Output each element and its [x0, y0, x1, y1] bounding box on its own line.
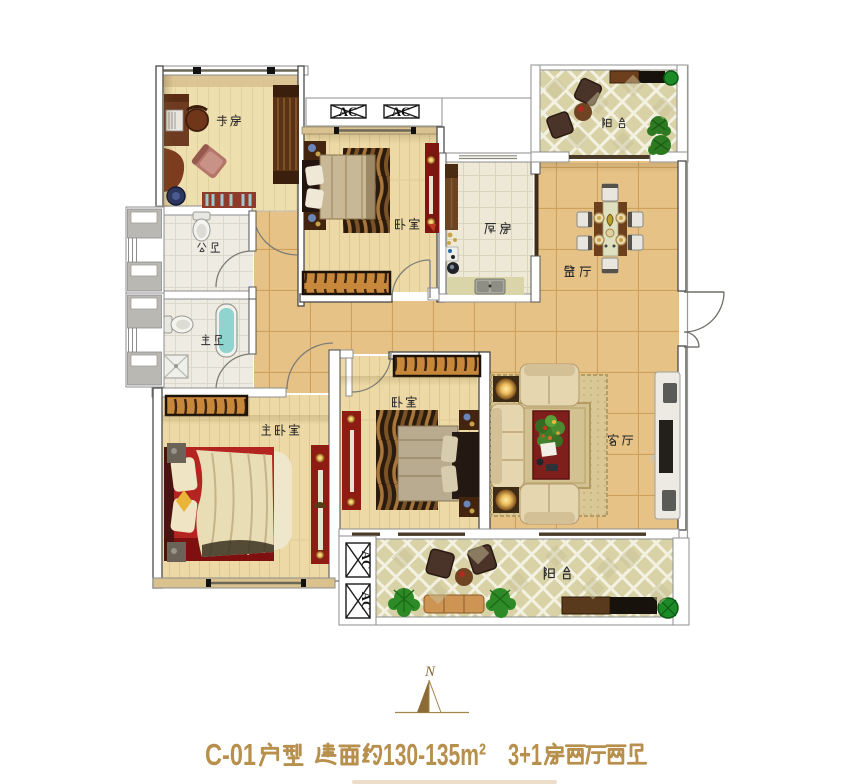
- svg-text:3+1: 3+1: [508, 737, 542, 772]
- svg-text:C-01: C-01: [205, 737, 256, 772]
- svg-text:N: N: [424, 664, 436, 680]
- svg-text:AC: AC: [359, 551, 374, 570]
- svg-text:AC: AC: [359, 592, 374, 611]
- svg-text:130-135m²: 130-135m²: [383, 737, 486, 772]
- svg-text:AC: AC: [392, 104, 411, 119]
- svg-text:AC: AC: [339, 104, 358, 119]
